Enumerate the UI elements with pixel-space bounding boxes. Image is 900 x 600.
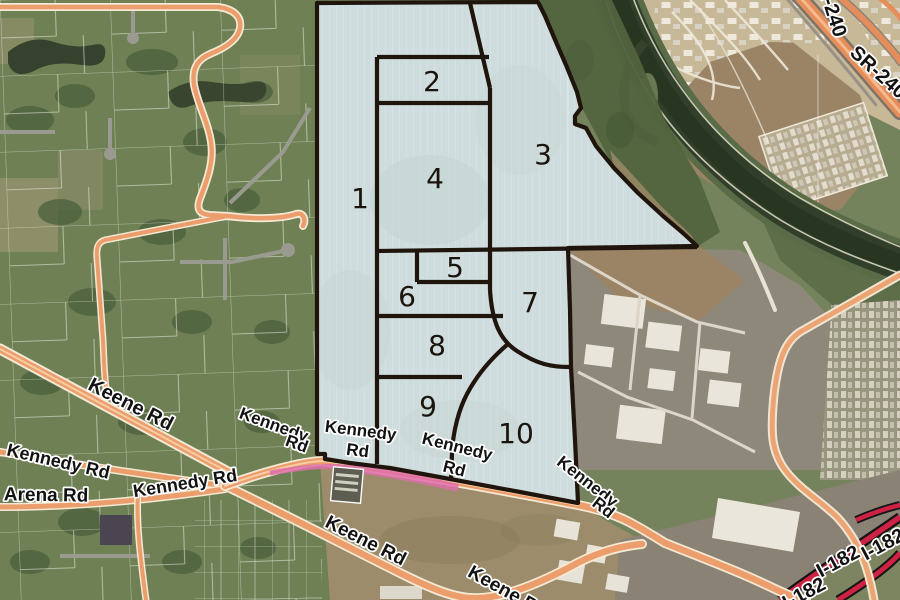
parcel-number: 6: [398, 280, 416, 313]
map-canvas[interactable]: 1 2 3 4 5 6 7 8 9 10 Keene Rd Kennedy Rd…: [0, 0, 900, 600]
parcel-number: 2: [423, 65, 441, 98]
parcel-number: 4: [426, 162, 444, 195]
parcel-number: 7: [521, 286, 539, 319]
road-label: Rd: [345, 440, 370, 462]
parcel-number: 5: [446, 251, 464, 284]
parcel-number: 9: [419, 390, 437, 423]
parcel-number: 3: [534, 138, 552, 171]
parcel-number: 10: [498, 417, 534, 450]
road-label: Arena Rd: [4, 484, 89, 506]
facility-parcel: [331, 467, 364, 503]
parcel-number: 1: [351, 182, 369, 215]
parcel-number: 8: [428, 329, 446, 362]
map-view[interactable]: 1 2 3 4 5 6 7 8 9 10 Keene Rd Kennedy Rd…: [0, 0, 900, 600]
building: [100, 515, 132, 545]
